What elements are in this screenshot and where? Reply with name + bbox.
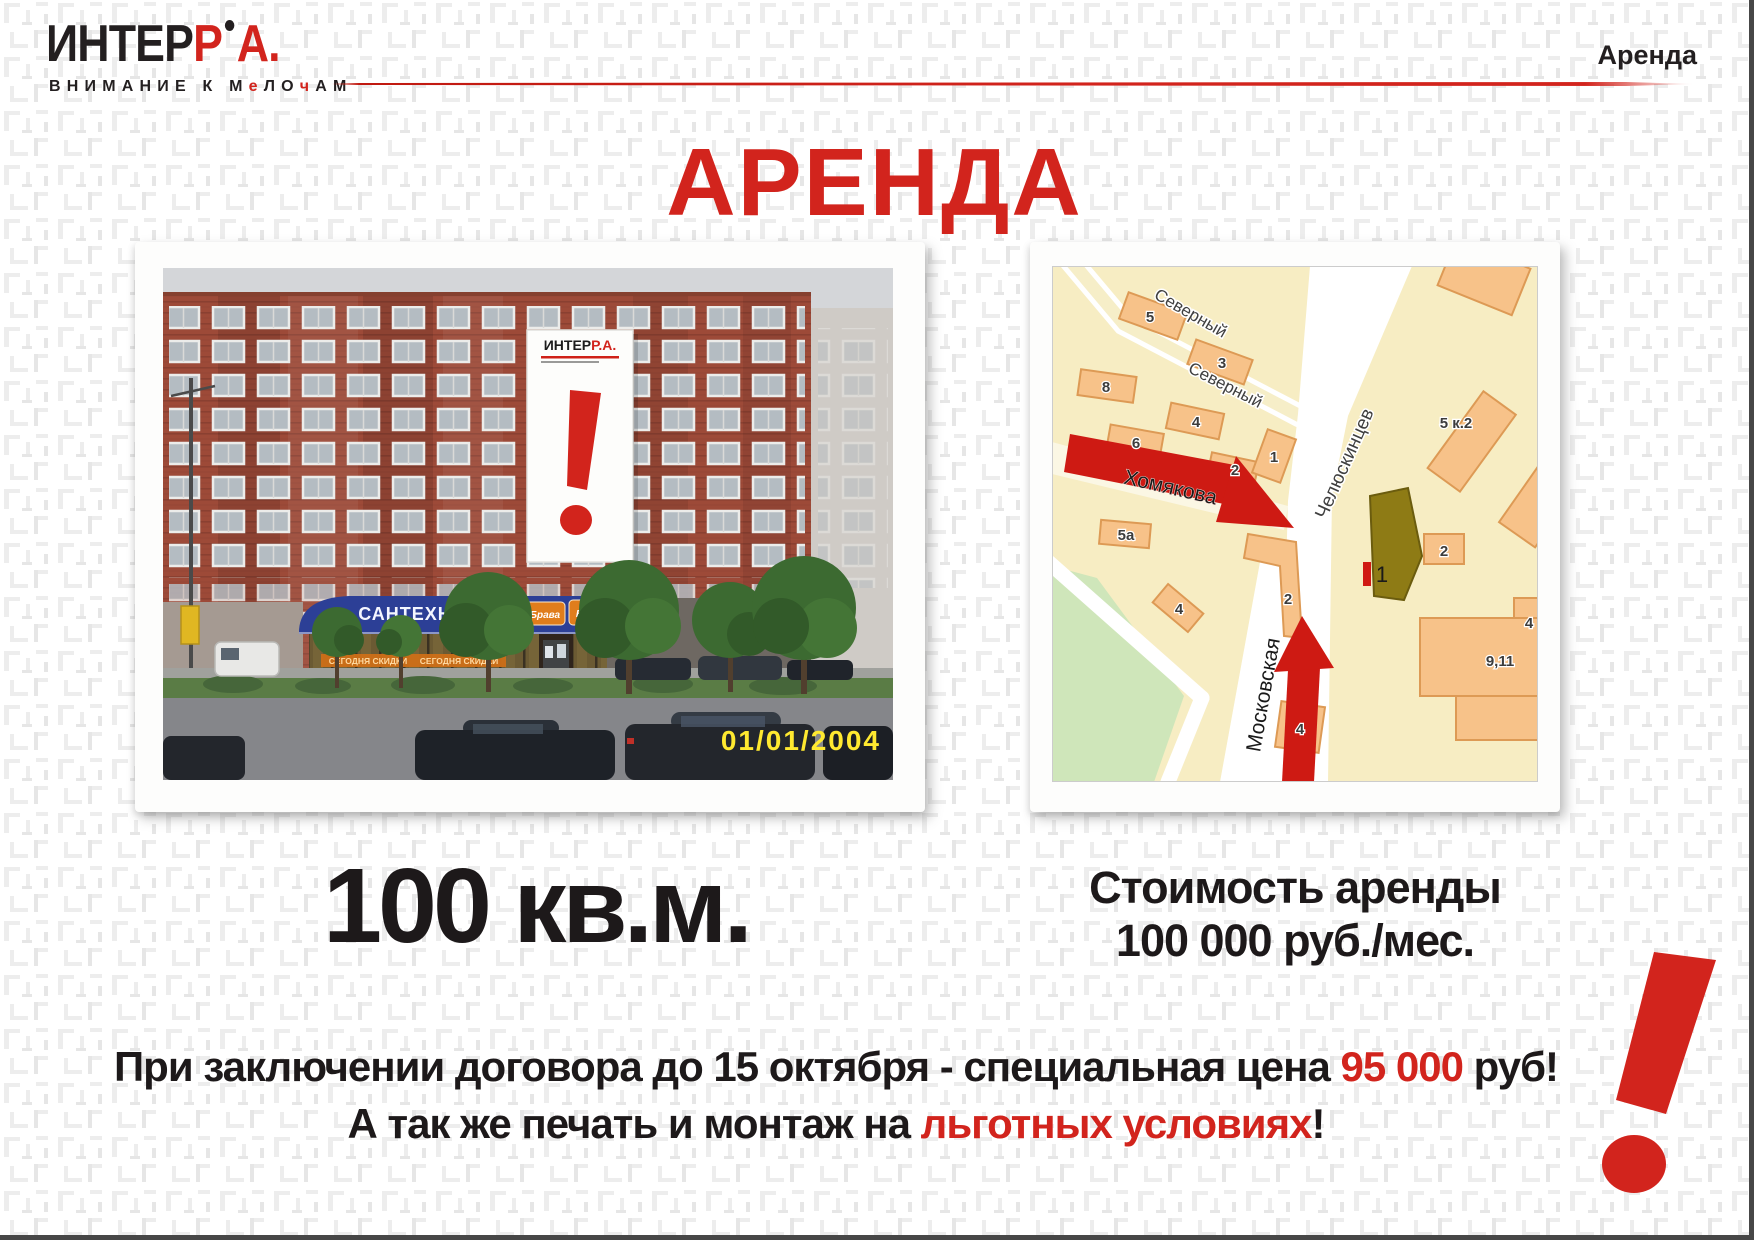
logo-red-a: А: [237, 15, 268, 73]
building-label: 4: [1296, 721, 1305, 738]
rent-price: Стоимость аренды 100 000 руб./мес.: [1065, 862, 1525, 967]
special-offer: При заключении договора до 15 октября - …: [0, 1038, 1672, 1152]
facade-banner: ИНТЕРР.А.: [527, 330, 638, 562]
area-value: 100 кв.м.: [186, 846, 886, 967]
section-label: Аренда: [1598, 40, 1697, 71]
building-label: 3: [1218, 355, 1226, 372]
building-label: 2: [1231, 462, 1239, 479]
map-card: Северный Северный Челюскинцев Хомякова М…: [1030, 242, 1560, 812]
logo-tagline: ВНИМАНИЕ К МеЛОчАМ: [49, 78, 353, 96]
building-label: 2: [1284, 591, 1292, 608]
taillight: [627, 738, 634, 744]
price-line2: 100 000 руб./мес.: [1065, 915, 1525, 968]
offer-terms-red: льготных условиях: [921, 1100, 1312, 1147]
site-number-label: 1: [1376, 562, 1388, 587]
building-label: 5 к.2: [1440, 415, 1473, 432]
tagline-part: ВНИМАНИЕ К М: [49, 78, 249, 95]
logo-dot-icon: [225, 20, 234, 31]
building-label: 5а: [1118, 527, 1135, 544]
building-label: 6: [1132, 435, 1140, 452]
yellow-sign: [181, 606, 199, 644]
offer-text-part: При заключении договора до 15 октября - …: [114, 1043, 1340, 1090]
offer-line1: При заключении договора до 15 октября - …: [0, 1038, 1672, 1095]
building-photo: ИНТЕРР.А. САНТЕХНИКА Брава Брава С: [163, 268, 893, 780]
building-label: 4: [1192, 414, 1201, 431]
tagline-part: ЛО: [264, 78, 300, 95]
photo-card: ИНТЕРР.А. САНТЕХНИКА Брава Брава С: [135, 242, 925, 812]
building-label: 5: [1146, 309, 1154, 326]
logo-red-p: Р: [193, 15, 222, 73]
slide: ИНТЕРРА. ВНИМАНИЕ К МеЛОчАМ Аренда АРЕНД…: [0, 0, 1754, 1240]
tagline-red-letter: е: [249, 78, 264, 95]
banner-logo: ИНТЕРР.А.: [544, 337, 617, 353]
company-logo: ИНТЕРРА.: [46, 14, 280, 74]
discount-banner: СЕГОДНЯ СКИДКИ: [329, 656, 407, 666]
price-line1: Стоимость аренды: [1065, 862, 1525, 915]
page-title: АРЕНДА: [0, 128, 1749, 238]
window-grid: [169, 306, 805, 578]
location-map: Северный Северный Челюскинцев Хомякова М…: [1052, 266, 1538, 782]
building-label: 4: [1175, 601, 1184, 618]
shop-brand: Брава: [530, 610, 561, 621]
building-label: 4: [1525, 615, 1534, 632]
big-exclamation-icon: [1598, 942, 1748, 1204]
offer-text-part: !: [1312, 1100, 1325, 1147]
tagline-part: АМ: [315, 78, 352, 95]
building-label: 8: [1102, 379, 1110, 396]
site-marker: [1363, 562, 1371, 586]
building-label: 9,11: [1486, 653, 1514, 670]
tagline-red-letter: ч: [300, 78, 316, 95]
photo-timestamp: 01/01/2004: [721, 725, 881, 756]
building-label: 1: [1270, 449, 1278, 466]
offer-price-red: 95 000: [1340, 1043, 1462, 1090]
logo-black-part: ИНТЕР: [46, 15, 193, 73]
offer-text-part: А так же печать и монтаж на: [348, 1100, 921, 1147]
logo-period: .: [268, 15, 280, 73]
offer-text-part: руб!: [1463, 1043, 1558, 1090]
building-label: 2: [1440, 543, 1448, 560]
offer-line2: А так же печать и монтаж на льготных усл…: [0, 1095, 1672, 1152]
